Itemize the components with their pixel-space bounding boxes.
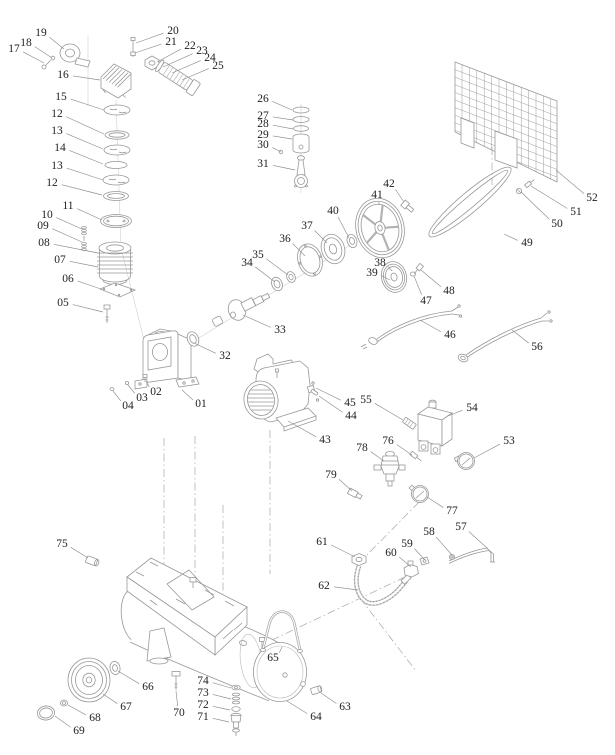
wheel: [68, 658, 110, 702]
leader-line-01: [182, 390, 193, 400]
part-label-63: 63: [339, 701, 351, 713]
washer-74: [232, 685, 240, 690]
part-label-70: 70: [173, 707, 185, 719]
belt-guard: [452, 55, 562, 190]
part-label-36: 36: [279, 233, 291, 245]
fitting-79: [347, 488, 362, 500]
part-label-58: 58: [423, 526, 435, 538]
part-label-11: 11: [62, 200, 73, 212]
leader-line-32: [194, 343, 216, 353]
wire-46: [361, 305, 462, 349]
leader-line-47: [414, 276, 422, 295]
nut-35: [285, 270, 297, 283]
bolt-02: [143, 375, 147, 378]
leader-line-74: [213, 683, 231, 688]
part-label-50: 50: [551, 218, 563, 230]
part-label-46: 46: [444, 329, 456, 341]
nipple-fitting-55: [402, 417, 416, 429]
leader-line-46: [420, 320, 441, 332]
leader-line-45: [316, 388, 341, 400]
head-bolt: [131, 38, 135, 58]
leader-line-59: [414, 549, 425, 560]
part-label-44: 44: [345, 410, 357, 422]
leader-line-76: [397, 445, 412, 455]
leader-line-63: [321, 693, 336, 703]
bearing-34: [270, 276, 285, 293]
part-label-22: 22: [184, 40, 196, 52]
leader-line-12: [66, 117, 104, 134]
part-label-13: 13: [51, 160, 63, 172]
leader-line-44: [319, 396, 343, 412]
part-label-26: 26: [257, 93, 269, 105]
part-label-49: 49: [521, 237, 533, 249]
part-label-41: 41: [371, 189, 383, 201]
leader-line-73: [213, 694, 231, 699]
leader-line-22: [157, 49, 181, 62]
leader-line-70: [176, 691, 178, 706]
leader-line-14: [69, 150, 103, 164]
leader-line-71: [213, 718, 229, 722]
hose-hex-fitting-61: [352, 554, 366, 566]
leader-line-28: [273, 125, 293, 129]
part-label-39: 39: [366, 267, 378, 279]
part-label-03: 03: [136, 392, 148, 404]
leader-line-56: [512, 330, 529, 343]
leader-line-35: [266, 259, 288, 275]
leader-line-68: [68, 705, 86, 715]
leader-line-04: [113, 391, 121, 401]
part-label-12: 12: [51, 108, 63, 120]
leader-line-50: [521, 192, 550, 219]
ring-69: [37, 705, 56, 721]
part-label-33: 33: [274, 324, 286, 336]
part-label-25: 25: [212, 60, 224, 72]
screw-76: [410, 451, 423, 462]
part-label-35: 35: [252, 249, 264, 261]
part-label-15: 15: [55, 91, 67, 103]
plug-63: [310, 685, 322, 695]
leader-line-49: [504, 234, 518, 240]
leader-line-61: [331, 545, 355, 557]
leader-line-51: [531, 186, 567, 208]
part-label-64: 64: [310, 711, 322, 723]
leader-line-33: [243, 315, 271, 327]
part-label-17: 17: [8, 43, 20, 55]
part-label-53: 53: [503, 435, 515, 447]
crankshaft: [212, 293, 270, 326]
pressure-gauge-53: [454, 453, 474, 470]
nut-04: [110, 388, 114, 391]
part-label-61: 61: [316, 536, 328, 548]
leader-line-69: [55, 716, 71, 727]
pressure-switch: [418, 400, 452, 454]
leader-line-10: [56, 218, 82, 229]
leader-line-29: [273, 136, 292, 139]
part-label-59: 59: [401, 538, 413, 550]
part-label-62: 62: [318, 580, 330, 592]
part-label-68: 68: [89, 712, 101, 724]
leader-line-62: [334, 587, 358, 590]
leader-line-27: [273, 117, 293, 120]
leader-line-57: [469, 531, 488, 549]
leader-line-16: [73, 76, 100, 80]
leader-line-34: [255, 267, 275, 282]
screw-17: [42, 65, 46, 69]
part-label-14: 14: [54, 142, 66, 154]
nut-58: [449, 554, 454, 559]
part-label-45: 45: [344, 397, 356, 409]
part-label-72: 72: [197, 699, 209, 711]
part-label-18: 18: [20, 37, 32, 49]
leader-line-24: [172, 61, 201, 73]
platform-bolt: [190, 578, 196, 583]
motor-key-44-45: [311, 382, 319, 401]
leader-line-06: [78, 281, 101, 289]
leader-line-23: [163, 54, 193, 67]
part-label-30: 30: [257, 139, 269, 151]
part-label-07: 07: [54, 254, 66, 266]
leader-line-13: [66, 134, 103, 149]
leader-line-75: [71, 547, 88, 558]
washer-03: [125, 381, 128, 384]
leader-line-20: [136, 33, 163, 43]
part-label-78: 78: [356, 442, 368, 454]
part-label-43: 43: [319, 434, 331, 446]
part-label-79: 79: [325, 469, 337, 481]
part-label-69: 69: [73, 725, 85, 737]
leader-line-09: [52, 229, 82, 242]
part-label-37: 37: [301, 220, 313, 232]
spring-73: [232, 693, 239, 696]
part-label-65: 65: [267, 652, 279, 664]
part-label-09: 09: [37, 220, 49, 232]
part-label-74: 74: [197, 675, 209, 687]
part-label-12: 12: [46, 177, 58, 189]
stud-bolt: [104, 305, 110, 323]
flywheel: [349, 193, 410, 263]
leader-line-42: [395, 189, 404, 202]
leader-line-67: [103, 694, 117, 704]
washer-72: [232, 707, 240, 712]
gasket-stack: [101, 105, 132, 228]
regulator: [374, 452, 405, 487]
electric-motor: [241, 354, 316, 431]
leader-line-31: [273, 165, 295, 170]
washer-68: [60, 700, 67, 706]
part-label-02: 02: [150, 386, 162, 398]
leader-line-78: [371, 452, 384, 461]
part-label-48: 48: [443, 285, 455, 297]
part-label-57: 57: [455, 521, 467, 533]
ribbed-bolt: [154, 58, 201, 96]
part-label-19: 19: [35, 27, 47, 39]
v-belt: [423, 160, 517, 243]
part-label-08: 08: [38, 237, 50, 249]
part-label-16: 16: [57, 69, 69, 81]
part-label-66: 66: [142, 681, 154, 693]
pressure-gauge-77: [409, 485, 428, 502]
parts-diagram-canvas: 1718192021222324251615121314131211100908…: [0, 0, 615, 755]
leader-line-18: [35, 46, 52, 58]
leader-line-43: [288, 421, 316, 437]
leader-line-17: [23, 52, 44, 63]
part-label-76: 76: [382, 435, 394, 447]
part-label-42: 42: [383, 178, 395, 190]
cylinder: [97, 242, 133, 285]
leader-line-58: [436, 537, 452, 555]
leader-line-12: [62, 185, 102, 195]
pulley-bolt-47-48: [410, 263, 423, 276]
leader-line-21: [135, 44, 161, 53]
part-label-40: 40: [327, 205, 339, 217]
leader-line-77: [427, 497, 443, 508]
connecting-rod: [295, 156, 308, 188]
base-gasket: [100, 283, 135, 297]
leader-line-25: [182, 69, 209, 80]
leader-line-52: [556, 170, 584, 194]
leader-line-03: [128, 385, 135, 393]
wire-56: [457, 311, 552, 363]
part-label-54: 54: [466, 402, 478, 414]
guard-screw-50-51: [516, 178, 535, 193]
leader-line-48: [421, 270, 441, 287]
part-label-71: 71: [197, 711, 209, 723]
leader-line-53: [474, 444, 500, 458]
leader-line-19: [49, 37, 64, 49]
part-label-47: 47: [420, 295, 432, 307]
leader-line-79: [339, 479, 352, 491]
drain-valve-stack: [231, 685, 241, 736]
wheel-washer-66: [109, 661, 122, 676]
crankcase: [110, 329, 199, 391]
leader-line-11: [77, 209, 102, 220]
part-label-75: 75: [56, 538, 68, 550]
part-label-56: 56: [531, 341, 543, 353]
leader-line-05: [73, 305, 103, 312]
part-label-06: 06: [62, 273, 74, 285]
part-label-32: 32: [219, 350, 231, 362]
leader-line-07: [70, 261, 98, 267]
part-label-13: 13: [51, 125, 63, 137]
leader-line-30: [272, 148, 281, 152]
part-label-77: 77: [446, 505, 458, 517]
elbow-59: [420, 557, 429, 565]
leader-line-64: [287, 701, 307, 714]
leader-line-13: [67, 168, 103, 180]
leader-line-55: [375, 403, 403, 420]
part-label-52: 52: [586, 192, 598, 204]
leader-line-72: [213, 706, 230, 710]
valve-springs: [82, 227, 87, 251]
part-label-34: 34: [241, 257, 253, 269]
leader-line-15: [71, 99, 104, 110]
piston: [279, 134, 309, 154]
check-valve-60: [404, 565, 419, 578]
leader-line-66: [118, 671, 139, 684]
part-label-05: 05: [57, 297, 69, 309]
part-label-55: 55: [360, 394, 372, 406]
part-label-21: 21: [165, 36, 177, 48]
part-label-73: 73: [197, 687, 209, 699]
part-label-60: 60: [385, 547, 397, 559]
flywheel-bolt-42: [401, 200, 415, 213]
part-label-67: 67: [120, 701, 132, 713]
part-label-01: 01: [195, 398, 207, 410]
leader-line-26: [272, 101, 292, 110]
cylinder-head: [101, 64, 131, 98]
leader-line-40: [338, 217, 349, 238]
part-label-51: 51: [570, 206, 582, 218]
exploded-parts-diagram: 1718192021222324251615121314131211100908…: [0, 0, 615, 755]
leader-line-08: [54, 244, 98, 253]
part-label-04: 04: [122, 400, 134, 412]
part-label-31: 31: [257, 158, 269, 170]
bolt-70: [172, 672, 180, 691]
